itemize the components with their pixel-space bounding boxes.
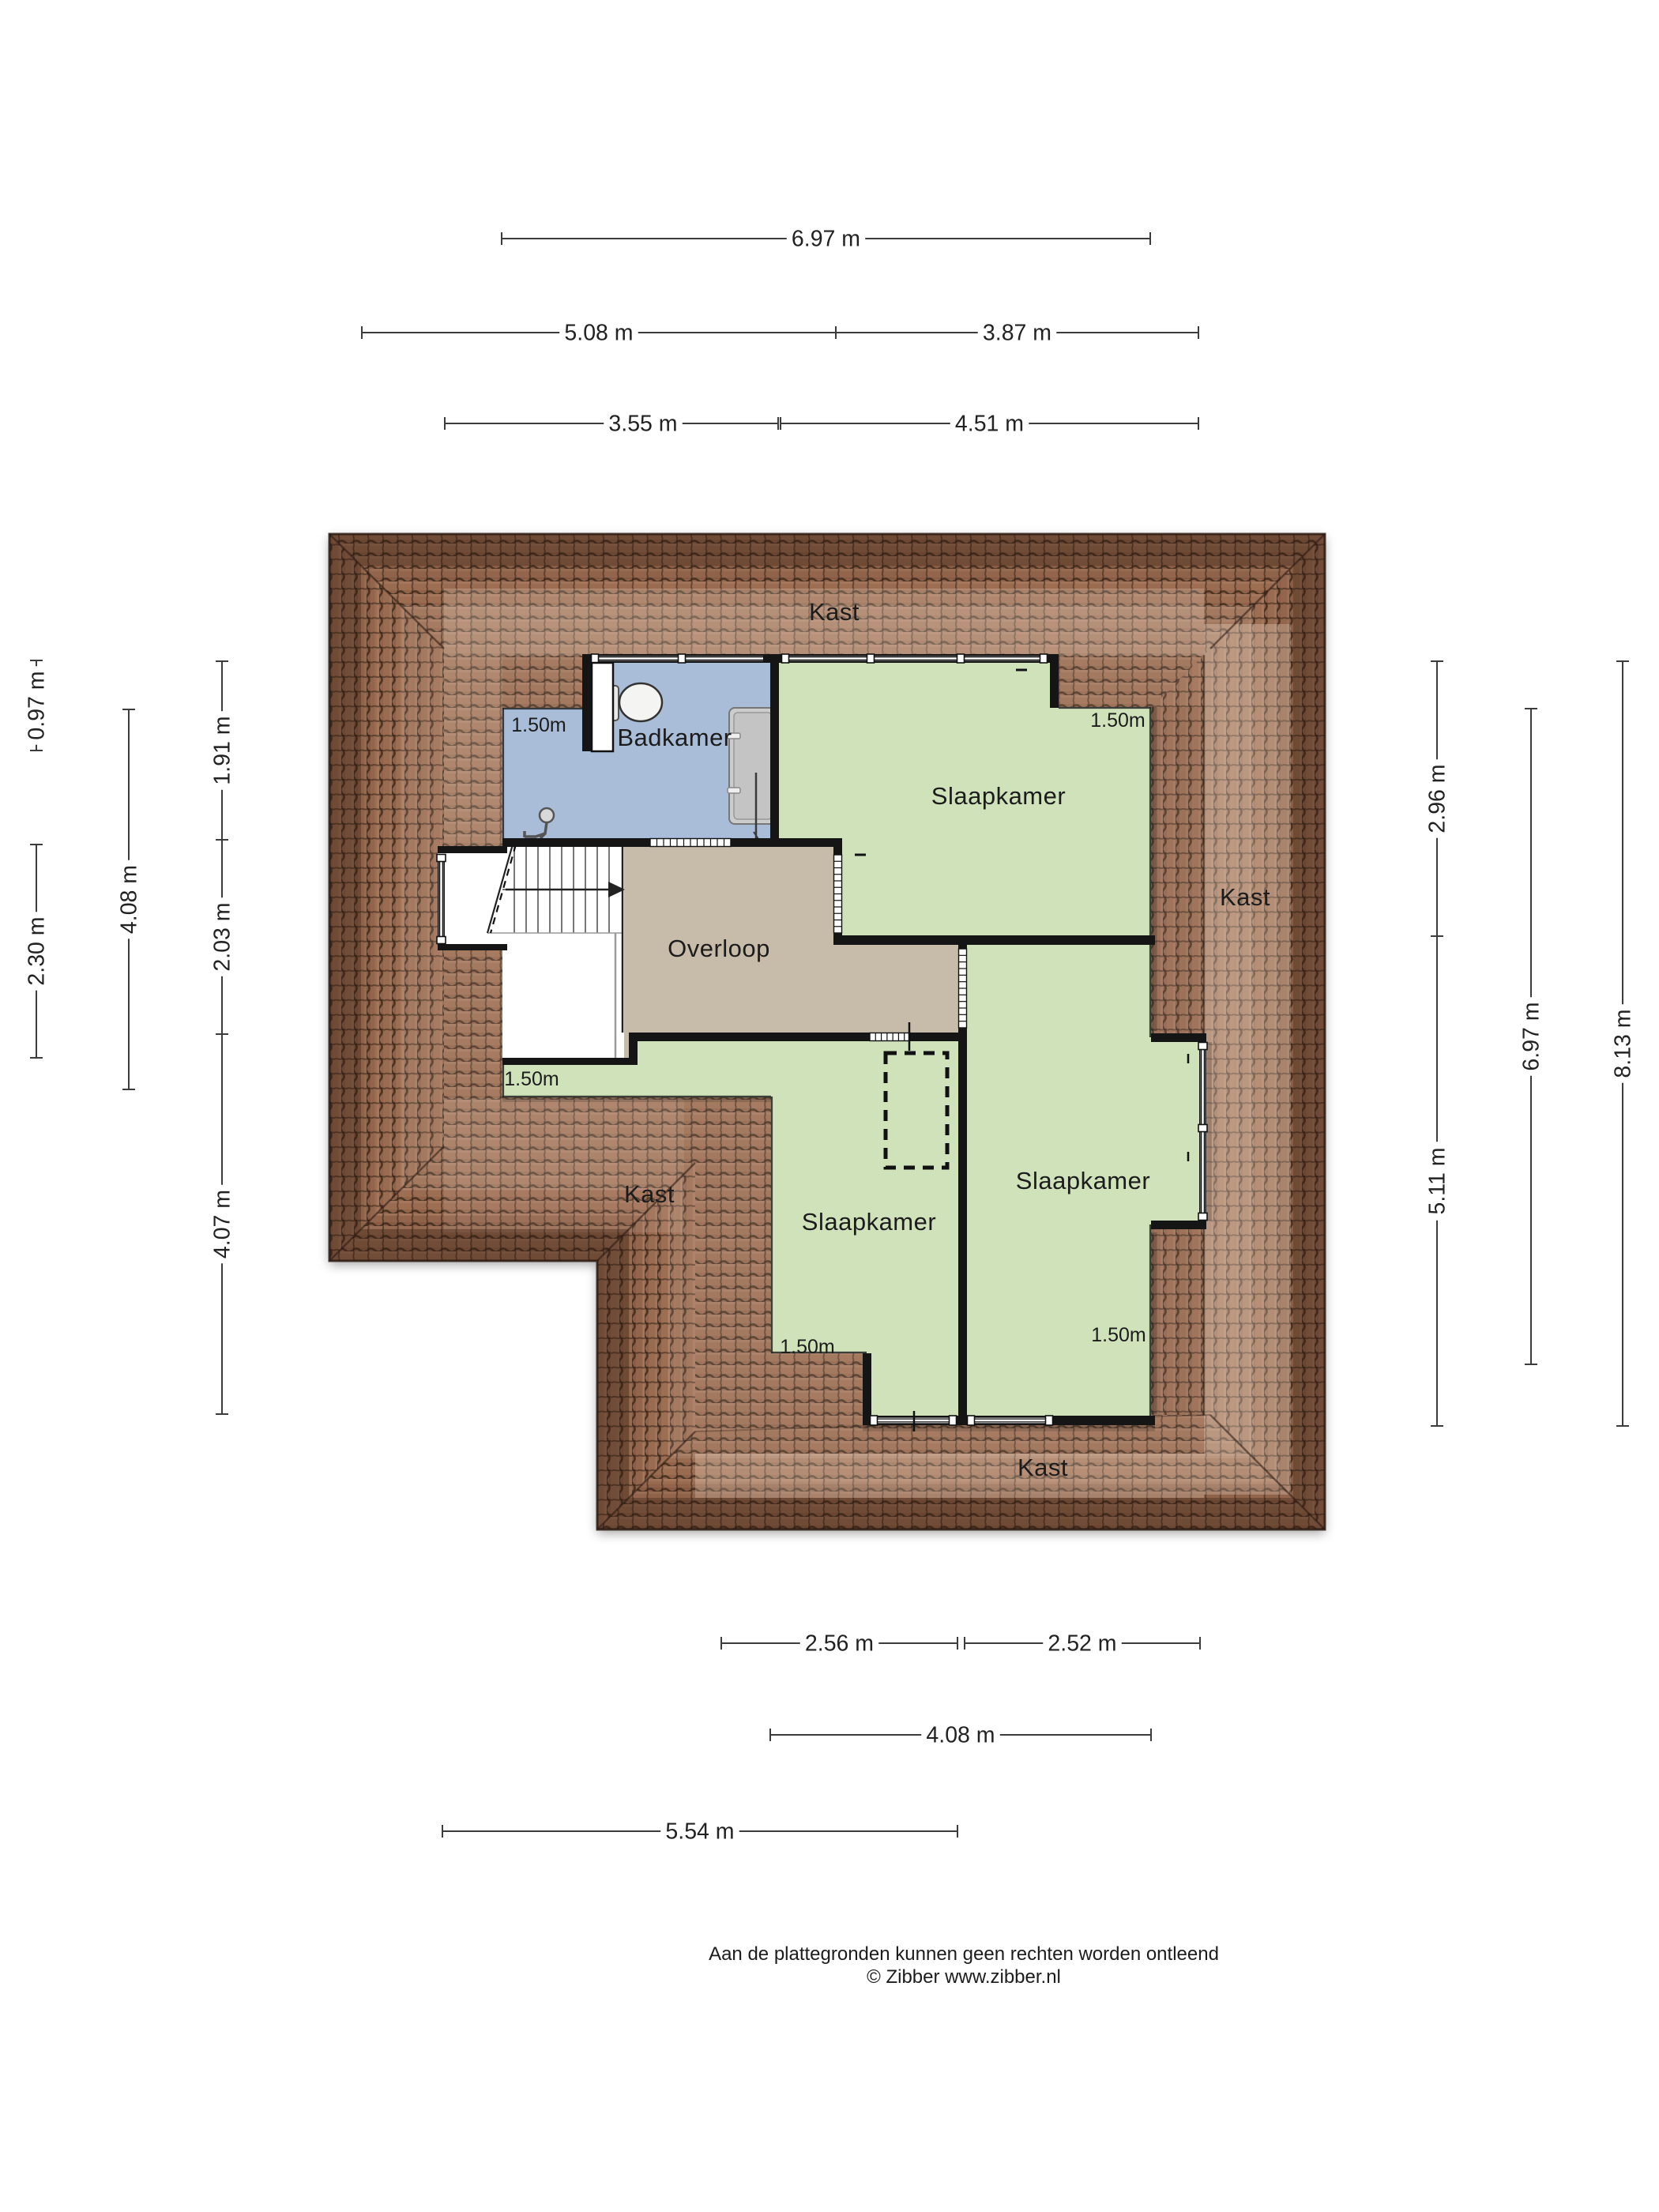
svg-text:4.07 m: 4.07 m <box>210 1190 235 1258</box>
svg-text:1.50m: 1.50m <box>511 714 566 736</box>
svg-text:1.91 m: 1.91 m <box>210 716 235 784</box>
svg-text:8.13 m: 8.13 m <box>1611 1009 1636 1078</box>
svg-text:2.30 m: 2.30 m <box>24 916 50 985</box>
svg-text:Badkamer: Badkamer <box>617 724 732 751</box>
svg-text:6.97 m: 6.97 m <box>792 227 860 252</box>
svg-text:1.50m: 1.50m <box>1090 709 1145 732</box>
svg-text:Slaapkamer: Slaapkamer <box>1016 1167 1150 1194</box>
svg-text:Slaapkamer: Slaapkamer <box>931 782 1066 810</box>
svg-text:3.55 m: 3.55 m <box>608 412 677 437</box>
svg-text:Kast: Kast <box>1220 883 1270 911</box>
svg-text:Kast: Kast <box>809 598 860 626</box>
svg-text:Aan de plattegronden kunnen ge: Aan de plattegronden kunnen geen rechten… <box>709 1943 1219 1965</box>
svg-text:© Zibber www.zibber.nl: © Zibber www.zibber.nl <box>867 1966 1061 1988</box>
svg-text:4.51 m: 4.51 m <box>955 412 1024 437</box>
svg-text:2.52 m: 2.52 m <box>1048 1631 1116 1657</box>
svg-text:Overloop: Overloop <box>668 935 770 962</box>
svg-text:4.08 m: 4.08 m <box>117 865 142 934</box>
svg-text:Kast: Kast <box>1018 1454 1068 1481</box>
svg-text:2.03 m: 2.03 m <box>210 902 235 971</box>
svg-text:1.50m: 1.50m <box>1091 1324 1145 1346</box>
svg-text:5.08 m: 5.08 m <box>564 321 633 346</box>
svg-text:2.56 m: 2.56 m <box>805 1631 874 1657</box>
svg-text:5.11 m: 5.11 m <box>1425 1147 1450 1214</box>
svg-text:4.08 m: 4.08 m <box>926 1723 995 1748</box>
svg-text:Slaapkamer: Slaapkamer <box>802 1208 936 1236</box>
svg-text:Kast: Kast <box>624 1180 675 1208</box>
svg-text:0.97 m: 0.97 m <box>24 671 50 739</box>
svg-text:6.97 m: 6.97 m <box>1519 1002 1544 1070</box>
svg-text:2.96 m: 2.96 m <box>1425 764 1450 833</box>
svg-text:1.50m: 1.50m <box>780 1336 834 1358</box>
svg-text:3.87 m: 3.87 m <box>983 321 1051 346</box>
svg-text:1.50m: 1.50m <box>504 1068 559 1090</box>
svg-text:5.54 m: 5.54 m <box>665 1819 734 1845</box>
